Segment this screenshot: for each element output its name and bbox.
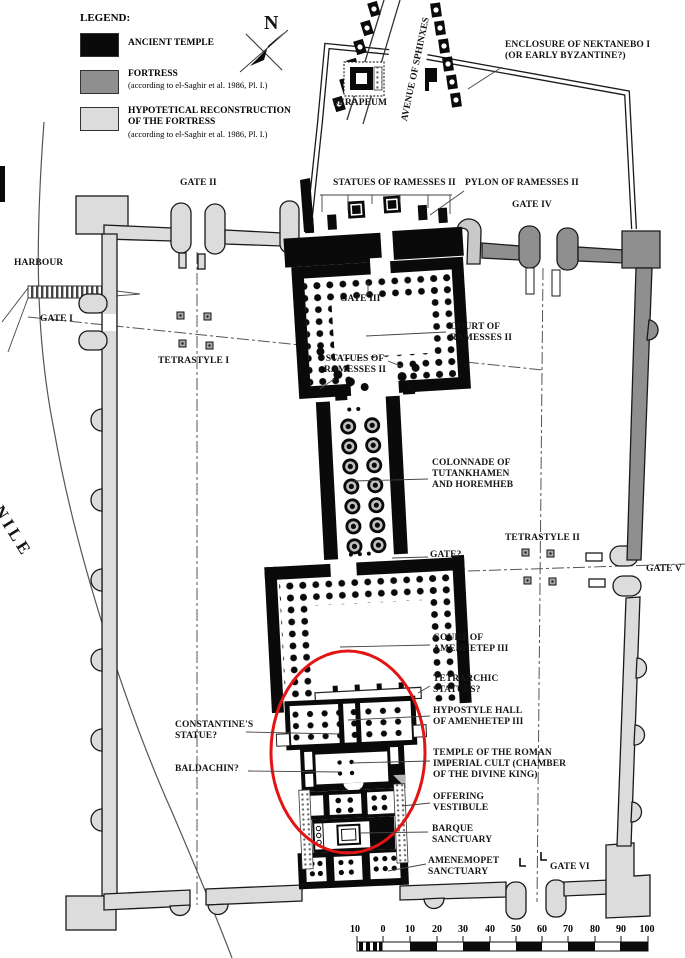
site-plan-figure: LEGEND: ANCIENT TEMPLE FORTRESS (accordi…	[0, 0, 685, 958]
scale-bar	[357, 936, 648, 951]
label-court-of-amenhetep: COURT OF AMENHETEP III	[433, 633, 508, 655]
legend-item-ancient-temple: ANCIENT TEMPLE	[80, 32, 310, 56]
tetrastyle-ii-bases	[522, 549, 556, 585]
colossus-statue	[347, 201, 365, 219]
label-pylon-of-ramesses: PYLON OF RAMESSES II	[465, 178, 579, 189]
legend-swatch-reconstruction	[80, 107, 119, 131]
serapeum-structure	[344, 62, 384, 96]
scale-tick: 10	[350, 924, 360, 935]
label-serapeum: SERAPEUM	[333, 98, 387, 109]
gate-iv-tower	[557, 228, 578, 270]
scale-tick: 10	[405, 924, 415, 935]
gate-i-tower	[79, 294, 107, 313]
colossus-statue	[383, 195, 401, 213]
label-barque-sanctuary: BARQUE SANCTUARY	[432, 824, 492, 846]
label-gate-iv: GATE IV	[512, 200, 552, 211]
label-offering-vestibule: OFFERING VESTIBULE	[433, 792, 488, 814]
scale-tick: 100	[640, 924, 655, 935]
legend-item-fortress: FORTRESS (according to el-Saghir et al. …	[80, 69, 310, 93]
label-roman-imperial-cult: TEMPLE OF THE ROMAN IMPERIAL CULT (CHAMB…	[433, 748, 566, 782]
north-gate-opening	[330, 561, 357, 579]
scale-tick: 0	[381, 924, 386, 935]
label-statues-of-ramesses-court: STATUES OF RAMESSES II	[322, 354, 388, 376]
label-tetrastyle-ii: TETRASTYLE II	[505, 533, 580, 544]
label-gate-iii: GATE III	[340, 294, 380, 305]
gate-v-tower	[613, 576, 641, 596]
scale-tick: 20	[432, 924, 442, 935]
label-gate-ii: GATE II	[180, 178, 217, 189]
label-colonnade: COLONNADE OF TUTANKHAMEN AND HOREMHEB	[432, 458, 513, 492]
label-court-of-ramesses: COURT OF RAMESSES II	[450, 322, 512, 344]
legend-item-reconstruction: HYPOTETICAL RECONSTRUCTION OF THE FORTRE…	[80, 106, 310, 139]
gate-iii-opening	[370, 257, 391, 276]
label-baldachin: BALDACHIN?	[175, 764, 239, 775]
north-label: N	[264, 12, 279, 36]
label-gate-i: GATE I	[40, 314, 73, 325]
gate-ii-tower	[205, 204, 225, 254]
label-statues-of-ramesses-top: STATUES OF RAMESSES II	[333, 178, 456, 189]
scale-tick: 70	[563, 924, 573, 935]
colonnade-columns	[340, 417, 387, 555]
label-gate-v: GATE V	[646, 564, 682, 575]
label-gate-unknown: GATE?	[430, 550, 461, 561]
fortress-walls	[482, 226, 660, 560]
label-harbour: HARBOUR	[14, 258, 63, 269]
pylon-east-mass	[392, 227, 464, 260]
label-constantines-statue: CONSTANTINE'S STATUE?	[175, 720, 253, 742]
legend-swatch-ancient-temple	[80, 33, 119, 57]
gate-vi-tower	[546, 880, 566, 917]
label-tetrarchic-statues: TETRARCHIC STATUES?	[433, 674, 498, 696]
structure-glyph	[425, 68, 437, 91]
gate-vi-glyphs	[520, 852, 547, 866]
gate-iv-tower	[519, 226, 540, 268]
east-wall-upper	[627, 268, 652, 560]
label-gate-vi: GATE VI	[550, 862, 590, 873]
tetrastyle-i-bases	[177, 312, 213, 349]
pylon-west-mass	[283, 233, 382, 268]
barque-pedestal	[337, 825, 360, 845]
label-tetrastyle-i: TETRASTYLE I	[158, 356, 229, 367]
label-hypostyle-hall: HYPOSTYLE HALL OF AMENHETEP III	[433, 706, 523, 728]
label-amenemopet-sanctuary: AMENEMOPET SANCTUARY	[428, 856, 499, 878]
scale-tick: 30	[458, 924, 468, 935]
scale-tick: 80	[590, 924, 600, 935]
inner-temple	[275, 698, 433, 890]
scale-tick: 60	[537, 924, 547, 935]
legend-swatch-fortress	[80, 70, 119, 94]
gate-i-opening	[103, 314, 116, 331]
se-corner-tower	[606, 843, 650, 918]
gate-ii-tower	[171, 203, 191, 253]
edge-fragment	[0, 166, 5, 202]
gate-vi-tower	[506, 882, 526, 919]
scale-tick: 50	[511, 924, 521, 935]
label-enclosure: ENCLOSURE OF NEKTANEBO I (OR EARLY BYZAN…	[505, 40, 650, 62]
ne-corner-tower	[622, 231, 660, 268]
gate-i-tower	[79, 331, 107, 350]
scale-tick: 90	[616, 924, 626, 935]
colonnade-hall	[316, 396, 408, 560]
scale-tick: 40	[485, 924, 495, 935]
